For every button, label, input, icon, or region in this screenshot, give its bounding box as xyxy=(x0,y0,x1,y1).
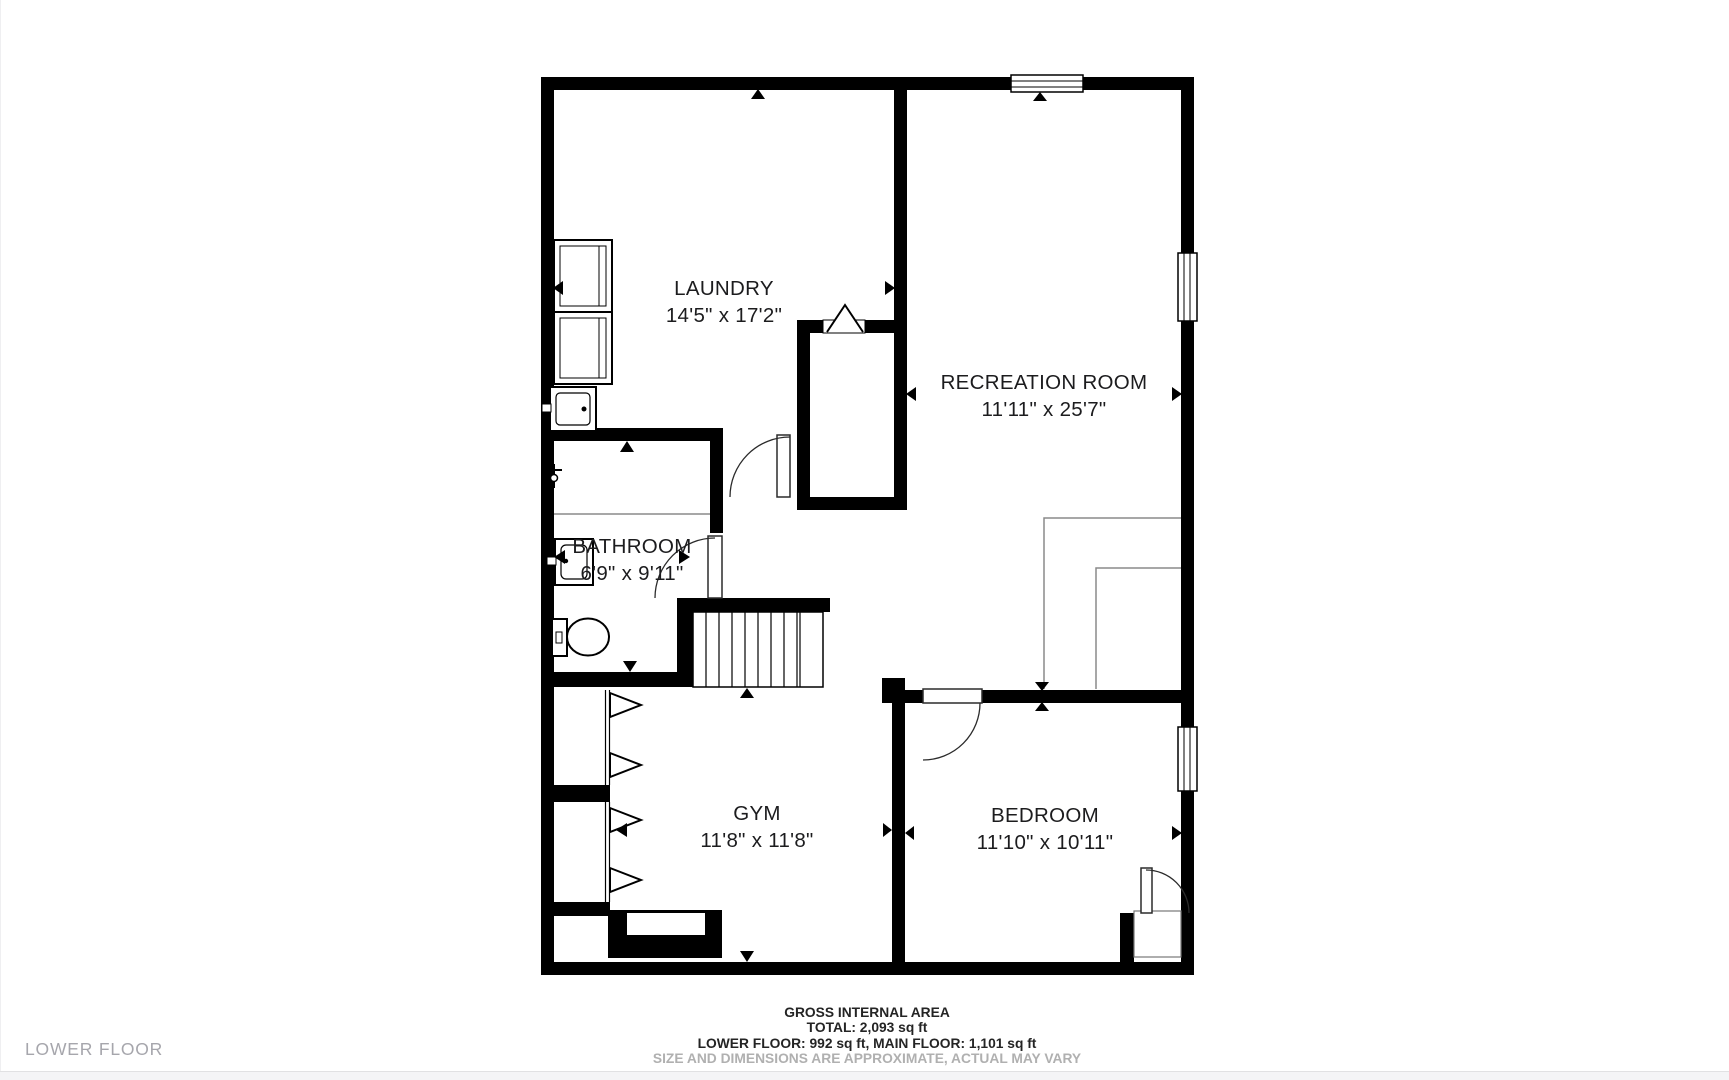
page-bottom-strip xyxy=(0,1071,1729,1080)
room-dims: 11'10" x 10'11" xyxy=(977,829,1114,856)
room-label-recreation: RECREATION ROOM 11'11" x 25'7" xyxy=(941,369,1148,423)
wall-stairs-top xyxy=(677,598,830,612)
floor-label: LOWER FLOOR xyxy=(25,1039,163,1060)
wall-gym-bedroom-divider xyxy=(892,678,905,962)
window-icon-rec-right xyxy=(1178,253,1197,321)
door-icon-bedroom xyxy=(923,689,982,760)
room-label-bathroom: BATHROOM 6'9" x 9'11" xyxy=(572,533,691,587)
wall-closet-top-a xyxy=(797,320,823,333)
door-icon-bedroom-closet xyxy=(1134,868,1189,957)
page-left-edge xyxy=(0,0,1,1072)
wall-closet-left xyxy=(797,333,810,510)
room-label-gym: GYM 11'8" x 11'8" xyxy=(700,800,813,854)
door-icon-laundry-hall xyxy=(730,435,790,497)
window-icon-bedroom-right xyxy=(1178,727,1197,791)
wall-gym-closet-divider-1 xyxy=(541,785,610,802)
room-name: LAUNDRY xyxy=(666,275,782,302)
floorplan-page: LAUNDRY 14'5" x 17'2" RECREATION ROOM 11… xyxy=(0,0,1729,1080)
room-label-bedroom: BEDROOM 11'10" x 10'11" xyxy=(977,802,1114,856)
disclaimer-text: SIZE AND DIMENSIONS ARE APPROXIMATE, ACT… xyxy=(653,1051,1081,1066)
wall-closet-bottom xyxy=(797,497,907,510)
wall-bottom xyxy=(541,962,1194,975)
laundry-sink-icon xyxy=(542,387,596,431)
room-name: BEDROOM xyxy=(977,802,1114,829)
toilet-icon xyxy=(552,619,609,657)
washer-icon xyxy=(554,240,612,312)
wall-bedroom-top-a xyxy=(905,690,923,703)
room-name: GYM xyxy=(700,800,813,827)
wall-bedroom-top-b xyxy=(982,690,1194,703)
floor-areas: LOWER FLOOR: 992 sq ft, MAIN FLOOR: 1,10… xyxy=(653,1036,1081,1051)
wall-right xyxy=(1181,77,1194,975)
door-icon-laundry-closet xyxy=(823,305,865,333)
floor-above-outline xyxy=(1044,518,1181,689)
wall-closet-top-b xyxy=(865,320,894,333)
room-dims: 11'8" x 11'8" xyxy=(700,827,813,854)
window-icon-top xyxy=(1011,75,1083,92)
room-name: BATHROOM xyxy=(572,533,691,560)
footer-area-summary: GROSS INTERNAL AREA TOTAL: 2,093 sq ft L… xyxy=(653,1005,1081,1067)
wall-laundry-rec-divider xyxy=(894,90,907,497)
stairs-icon xyxy=(693,612,823,687)
room-dims: 11'11" x 25'7" xyxy=(941,396,1148,423)
wall-gym-closet-divider-2 xyxy=(541,902,610,916)
room-name: RECREATION ROOM xyxy=(941,369,1148,396)
bifold-door-icons xyxy=(606,690,642,902)
floorplan-drawing xyxy=(0,0,1729,1080)
wall-bathroom-right xyxy=(710,441,723,533)
fireplace-icon xyxy=(608,910,722,958)
room-dims: 6'9" x 9'11" xyxy=(572,560,691,587)
wall-bathroom-bottom xyxy=(541,672,693,687)
room-dims: 14'5" x 17'2" xyxy=(666,302,782,329)
dryer-icon xyxy=(554,312,612,384)
gross-area-title: GROSS INTERNAL AREA xyxy=(653,1005,1081,1020)
room-label-laundry: LAUNDRY 14'5" x 17'2" xyxy=(666,275,782,329)
total-area: TOTAL: 2,093 sq ft xyxy=(653,1020,1081,1035)
wall-bedroom-closet-stub xyxy=(1120,913,1134,962)
wall-top xyxy=(541,77,1194,90)
wall-left xyxy=(541,77,554,975)
